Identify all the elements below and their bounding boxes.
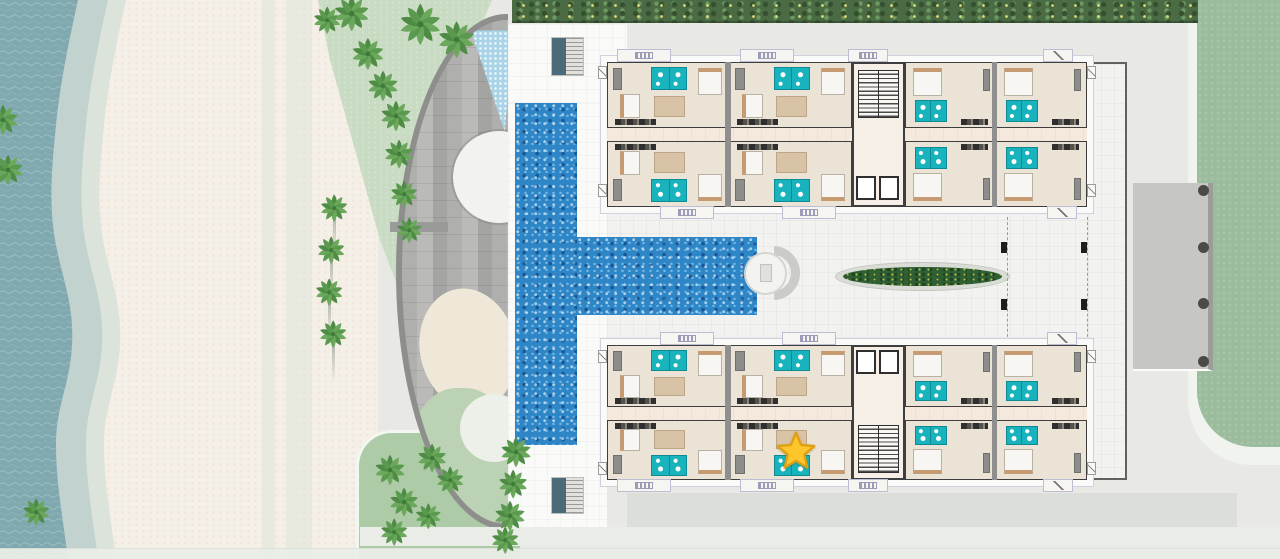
stair-flight (878, 71, 898, 117)
kitchen-counter-icon (615, 144, 656, 150)
palm-tree-icon (0, 152, 26, 188)
kitchen-counter-icon (615, 398, 656, 404)
balcony (660, 332, 714, 345)
unit-separator-wall (725, 345, 731, 480)
apartment-unit[interactable] (729, 345, 852, 407)
palm-tree-icon (315, 234, 347, 266)
unit-bathroom (774, 67, 810, 90)
palm-tree-icon (489, 524, 521, 556)
apartment-unit[interactable] (996, 420, 1087, 480)
paving-band (0, 548, 1280, 559)
balcony (1043, 479, 1073, 492)
dining-table-icon (654, 152, 685, 172)
master-bed-icon (821, 351, 845, 376)
ac-unit-icon (598, 350, 607, 363)
bathroom-fixtures (931, 101, 946, 121)
bathroom-fixtures (916, 148, 932, 168)
bathroom-fixtures (1022, 427, 1037, 445)
unit-bathroom (774, 350, 810, 372)
sofa-icon (735, 351, 745, 371)
bathroom-fixtures (792, 68, 809, 89)
pool-arm (577, 237, 757, 315)
kitchen-counter-icon (737, 423, 778, 429)
sofa-icon (735, 68, 745, 90)
entry-pad (1133, 183, 1213, 371)
elevator-icon (879, 176, 899, 200)
unit-separator-wall (992, 62, 997, 207)
bathroom-fixtures (652, 68, 670, 89)
bathroom-fixtures (931, 148, 946, 168)
bathroom-fixtures (792, 351, 809, 371)
balcony-railing (678, 335, 696, 342)
corridor (607, 128, 1087, 141)
sofa-icon (735, 455, 745, 475)
unit-bathroom (915, 426, 947, 446)
balcony-railing (635, 482, 653, 489)
dining-table-icon (654, 430, 685, 449)
balcony-railing (758, 52, 776, 59)
selected-unit-star-marker[interactable] (774, 430, 818, 474)
dining-table-icon (654, 377, 685, 396)
apartment-unit[interactable] (905, 62, 996, 128)
unit-bathroom (1006, 381, 1038, 401)
grid-dashed-line (1087, 217, 1088, 347)
apartment-unit[interactable] (905, 141, 996, 207)
unit-bathroom (774, 179, 810, 202)
bathroom-fixtures (916, 427, 932, 445)
balcony (617, 49, 671, 62)
bathroom-fixtures (1007, 148, 1023, 168)
bathroom-fixtures (775, 180, 793, 201)
palm-tree-icon (498, 434, 534, 470)
balcony-diagonal-mark (1057, 208, 1068, 217)
sofa-icon (1074, 453, 1081, 473)
balcony (740, 49, 794, 62)
unit-bathroom (651, 455, 687, 476)
entry-pad-column-dot (1198, 185, 1209, 196)
palm-tree-icon (313, 276, 345, 308)
second-bed-icon (620, 151, 640, 175)
balcony-railing (859, 52, 877, 59)
master-bed-icon (821, 68, 845, 95)
hedge (512, 0, 1198, 23)
unit-bathroom (651, 179, 687, 202)
bathroom-fixtures (670, 68, 687, 89)
ac-unit-icon (1087, 66, 1096, 79)
deck-stairs-icon (551, 37, 584, 76)
master-bed-icon (698, 174, 722, 201)
master-bed-icon (913, 68, 941, 96)
second-bed-icon (620, 94, 640, 118)
palm-tree-icon (0, 102, 21, 138)
master-bed-icon (1004, 173, 1032, 201)
sofa-icon (735, 179, 745, 201)
apartment-unit[interactable] (905, 420, 996, 480)
bathroom-fixtures (916, 101, 932, 121)
balcony (1047, 206, 1077, 219)
balcony-diagonal-mark (1053, 481, 1064, 490)
balcony (1043, 49, 1073, 62)
bathroom-fixtures (931, 382, 946, 400)
apartment-unit[interactable] (996, 345, 1087, 407)
grid-dashed-line (1007, 217, 1008, 347)
palm-tree-icon (434, 464, 466, 496)
apartment-unit[interactable] (729, 62, 852, 128)
balcony-railing (635, 52, 653, 59)
unit-bathroom (1006, 100, 1038, 122)
palm-tree-icon (388, 178, 420, 210)
sofa-icon (983, 178, 990, 200)
balcony-railing (758, 482, 776, 489)
pool-main (515, 103, 577, 445)
balcony (782, 206, 836, 219)
courtyard-column (1081, 299, 1087, 310)
apartment-unit[interactable] (996, 141, 1087, 207)
palm-tree-icon (496, 467, 530, 501)
master-bed-icon (1004, 449, 1032, 475)
unit-bathroom (915, 147, 947, 169)
beach-path (262, 0, 275, 559)
bathroom-fixtures (670, 456, 687, 475)
dining-table-icon (776, 152, 807, 172)
deck-stairs-icon (551, 477, 584, 514)
ac-unit-icon (1087, 462, 1096, 475)
sofa-icon (1074, 178, 1081, 200)
bathroom-fixtures (916, 382, 932, 400)
palm-tree-icon (382, 137, 416, 171)
entry-pad-column-dot (1198, 298, 1209, 309)
master-bed-icon (698, 450, 722, 474)
bathroom-fixtures (670, 351, 687, 371)
bathroom-fixtures (1022, 148, 1037, 168)
dining-table-icon (776, 96, 807, 116)
ac-unit-icon (598, 184, 607, 197)
kitchen-counter-icon (737, 119, 778, 125)
second-bed-icon (742, 375, 763, 398)
unit-bathroom (915, 100, 947, 122)
kitchen-counter-icon (1052, 423, 1079, 429)
kitchen-counter-icon (961, 144, 988, 150)
stairs-icon (858, 70, 899, 118)
shade-circle (453, 131, 508, 223)
balcony-diagonal-mark (1057, 334, 1068, 343)
bathroom-fixtures (670, 180, 687, 201)
palm-tree-icon (20, 496, 52, 528)
balcony (660, 206, 714, 219)
unit-bathroom (915, 381, 947, 401)
stair-flight (859, 426, 878, 472)
sofa-icon (983, 453, 990, 473)
palm-tree-icon (435, 18, 478, 61)
corridor (607, 407, 1087, 420)
kitchen-counter-icon (737, 144, 778, 150)
stairs-landing (552, 38, 566, 75)
second-bed-icon (620, 375, 640, 398)
bathroom-fixtures (1022, 382, 1037, 400)
sofa-icon (1074, 352, 1081, 372)
palm-tree-icon (378, 98, 414, 134)
balcony (782, 332, 836, 345)
courtyard-column (1001, 242, 1007, 253)
elevator-icon (856, 176, 876, 200)
unit-bathroom (1006, 426, 1038, 446)
ac-unit-icon (598, 462, 607, 475)
stairs-landing (552, 478, 566, 513)
master-bed-icon (913, 173, 941, 201)
apartment-unit[interactable] (607, 420, 729, 480)
unit-separator-wall (992, 345, 997, 480)
balcony-diagonal-mark (1053, 51, 1064, 60)
balcony (1047, 332, 1077, 345)
master-bed-icon (821, 174, 845, 201)
unit-separator-wall (725, 62, 731, 207)
bathroom-fixtures (775, 68, 793, 89)
apartment-unit[interactable] (729, 141, 852, 207)
palm-tree-icon (318, 192, 350, 224)
sofa-icon (983, 69, 990, 91)
balcony (848, 479, 888, 492)
apartment-unit[interactable] (996, 62, 1087, 128)
master-bed-icon (1004, 351, 1032, 377)
floor-plan-scene (0, 0, 1280, 559)
kitchen-counter-icon (961, 398, 988, 404)
unit-bathroom (651, 350, 687, 372)
sofa-icon (613, 68, 623, 90)
bathroom-fixtures (1007, 427, 1023, 445)
sofa-icon (613, 455, 623, 475)
bathroom-fixtures (652, 180, 670, 201)
palm-tree-icon (394, 215, 425, 246)
elevator-icon (856, 350, 876, 374)
second-bed-icon (742, 429, 763, 451)
pool-steps-handle (760, 264, 772, 282)
stairs-icon (858, 425, 899, 473)
courtyard-column (1001, 299, 1007, 310)
stairs-treads (566, 38, 583, 75)
bathroom-fixtures (1022, 101, 1037, 121)
dining-table-icon (654, 96, 685, 116)
sofa-icon (613, 179, 623, 201)
master-bed-icon (821, 450, 845, 474)
palm-tree-icon (378, 516, 410, 548)
planter-oval (835, 262, 1010, 291)
apartment-unit[interactable] (607, 62, 729, 128)
entry-pad-column-dot (1198, 242, 1209, 253)
master-bed-icon (698, 68, 722, 95)
kitchen-counter-icon (615, 119, 656, 125)
master-bed-icon (913, 449, 941, 475)
balcony (740, 479, 794, 492)
apartment-unit[interactable] (905, 345, 996, 407)
entry-pad-column-dot (1198, 356, 1209, 367)
ac-unit-icon (1087, 350, 1096, 363)
unit-bathroom (651, 67, 687, 90)
apartment-unit[interactable] (607, 141, 729, 207)
kitchen-counter-icon (961, 119, 988, 125)
bathroom-fixtures (775, 351, 793, 371)
palm-tree-icon (413, 501, 444, 532)
master-bed-icon (1004, 68, 1032, 96)
kitchen-counter-icon (1052, 144, 1079, 150)
stair-flight (878, 426, 898, 472)
kitchen-counter-icon (1052, 398, 1079, 404)
balcony-railing (859, 482, 877, 489)
balcony-railing (800, 335, 818, 342)
stairs-treads (566, 478, 583, 513)
bathroom-fixtures (652, 456, 670, 475)
palm-tree-icon (372, 452, 408, 488)
elevator-icon (879, 350, 899, 374)
balcony (617, 479, 671, 492)
paving-band (627, 493, 1237, 527)
ocean (0, 0, 200, 559)
palm-tree-icon (331, 0, 372, 35)
kitchen-counter-icon (615, 423, 656, 429)
balcony-railing (800, 209, 818, 216)
balcony-railing (678, 209, 696, 216)
stair-flight (859, 71, 878, 117)
ac-unit-icon (1087, 184, 1096, 197)
master-bed-icon (698, 351, 722, 376)
bathroom-fixtures (792, 180, 809, 201)
sofa-icon (613, 351, 623, 371)
bathroom-fixtures (1007, 382, 1023, 400)
second-bed-icon (620, 429, 640, 451)
second-bed-icon (742, 94, 763, 118)
sofa-icon (983, 352, 990, 372)
kitchen-counter-icon (1052, 119, 1079, 125)
second-bed-icon (742, 151, 763, 175)
bathroom-fixtures (931, 427, 946, 445)
balcony (848, 49, 888, 62)
kitchen-counter-icon (737, 398, 778, 404)
dining-table-icon (776, 377, 807, 396)
kitchen-counter-icon (961, 423, 988, 429)
apartment-unit[interactable] (607, 345, 729, 407)
courtyard-column (1081, 242, 1087, 253)
master-bed-icon (913, 351, 941, 377)
beach-path (286, 0, 312, 559)
planter-greenery (843, 267, 1002, 286)
palm-tree-icon (317, 318, 349, 350)
unit-bathroom (1006, 147, 1038, 169)
sofa-icon (1074, 69, 1081, 91)
bathroom-fixtures (652, 351, 670, 371)
ac-unit-icon (598, 66, 607, 79)
bathroom-fixtures (1007, 101, 1023, 121)
